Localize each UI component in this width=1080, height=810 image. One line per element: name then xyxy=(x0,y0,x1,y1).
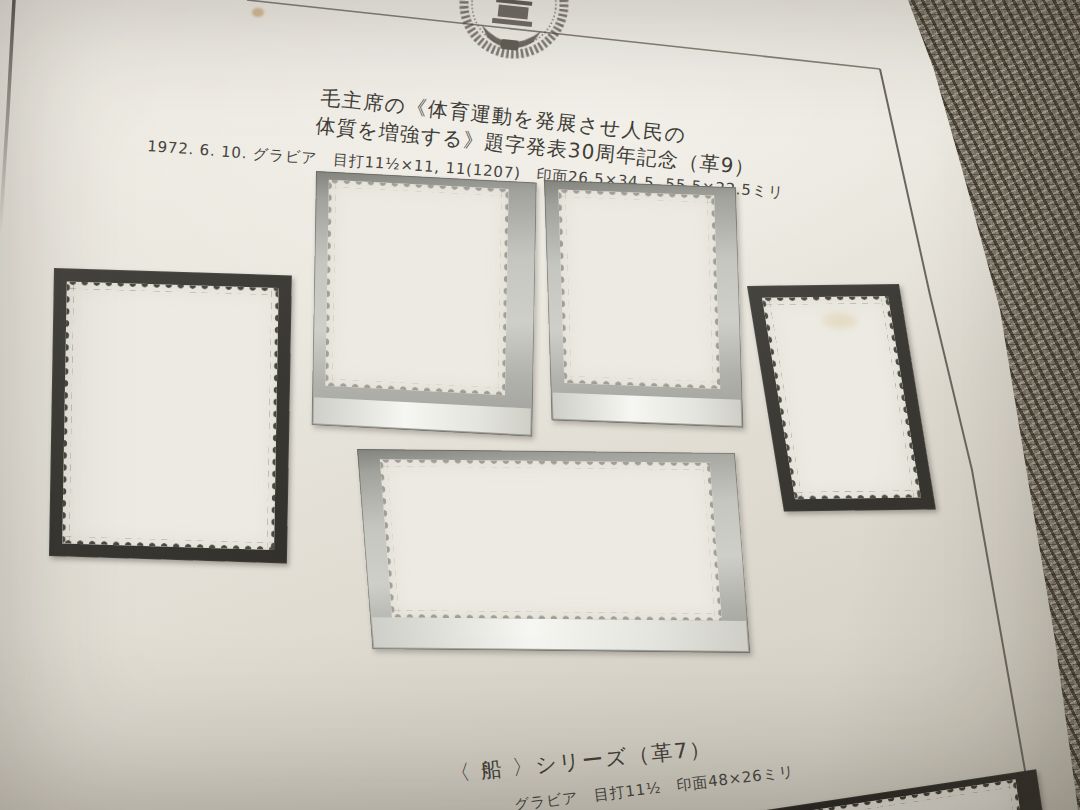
issue-specs-line: 1972. 6. 10. グラビア 目打11½×11, 11(1207) 印面2… xyxy=(147,137,785,203)
right-vertical-mount xyxy=(747,284,936,512)
center-top-right-mount xyxy=(544,180,743,428)
center-bottom-horizontal-mount xyxy=(357,449,750,653)
series-title-line: 〈 船 〉シリーズ（革7） xyxy=(448,734,714,788)
film-reflection xyxy=(314,397,531,434)
blank-stamp-back xyxy=(762,296,921,499)
left-vertical-mount xyxy=(49,268,292,563)
blank-stamp-back xyxy=(380,459,722,621)
title-line-2: 体質を増強する》題字発表30周年記念（革9） xyxy=(314,112,756,182)
blank-stamp-back xyxy=(719,779,1027,810)
page-border-lines xyxy=(0,0,1080,810)
film-reflection xyxy=(372,617,748,651)
album-page: ★ ★ ★ ★ ★ 毛主席の《体育運動を発展させ人民の 体質を増強する》題字発表… xyxy=(0,0,1080,810)
paper-stain xyxy=(822,312,859,328)
film-reflection xyxy=(553,392,742,425)
title-line-1: 毛主席の《体育運動を発展させ人民の xyxy=(319,84,688,149)
paper-stain xyxy=(252,8,264,17)
blank-stamp-back xyxy=(325,180,508,396)
prc-national-emblem-icon: ★ ★ ★ ★ ★ xyxy=(446,0,582,72)
center-top-left-mount xyxy=(312,171,537,437)
bottom-right-partial-mount xyxy=(700,769,1048,810)
series-specs-line: グラビア 目打11½ 印面48×26ミリ xyxy=(513,763,796,810)
blank-stamp-back xyxy=(558,190,720,389)
photo-scene: ★ ★ ★ ★ ★ 毛主席の《体育運動を発展させ人民の 体質を増強する》題字発表… xyxy=(0,0,1080,810)
blank-stamp-back xyxy=(62,281,278,550)
